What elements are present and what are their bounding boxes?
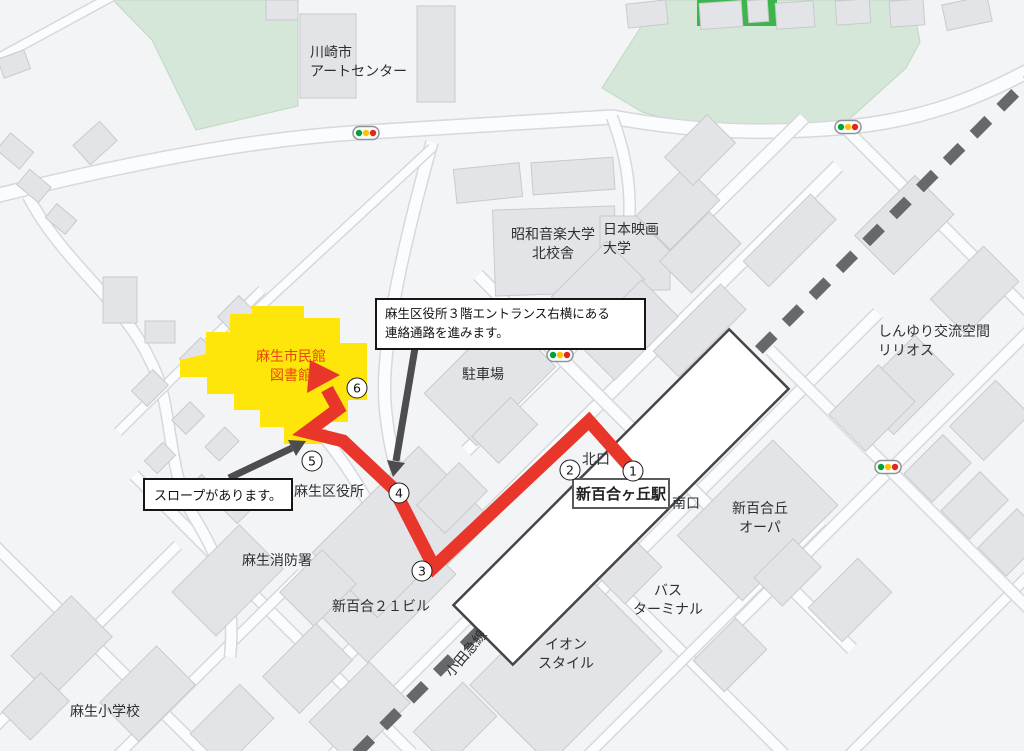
access-map: 川崎市 アートセンター 昭和音楽大学 北校舎 日本映画 大学 しんゆり交流空間 …	[0, 0, 1024, 751]
label-parking-lot: 駐車場	[462, 366, 504, 385]
label-asao-elementary-school: 麻生小学校	[70, 703, 140, 722]
traffic-light-icon	[835, 121, 861, 134]
label-north-exit: 北口	[582, 451, 610, 470]
label-showa-music-univ: 昭和音楽大学 北校舎	[511, 226, 595, 264]
traffic-light-icon	[875, 461, 901, 474]
label-japan-film-univ: 日本映画 大学	[603, 221, 659, 259]
map-canvas	[0, 0, 1024, 751]
label-kawasaki-art-center: 川崎市 アートセンター	[310, 44, 407, 82]
label-asao-fire-station: 麻生消防署	[242, 552, 312, 571]
callout-slope-note: スロープがあります。	[143, 478, 293, 511]
label-shinyurigaoka-opa: 新百合丘 オーパ	[732, 500, 788, 538]
label-shinyuri-lirios: しんゆり交流空間 リリオス	[878, 323, 990, 361]
route-marker-4: 4	[389, 483, 410, 504]
label-bus-terminal: バス ターミナル	[633, 582, 703, 620]
route-marker-5: 5	[302, 451, 323, 472]
callout-corridor-note: 麻生区役所３階エントランス右横にある 連絡通路を進みます。	[375, 298, 646, 350]
guide-arrow-slope	[229, 440, 306, 478]
route-marker-6: 6	[347, 378, 368, 399]
station-name-box: 新百合ヶ丘駅	[572, 478, 670, 509]
label-aeon-style: イオン スタイル	[538, 636, 594, 674]
route-marker-2: 2	[560, 460, 581, 481]
label-asao-ward-office: 麻生区役所	[294, 483, 364, 502]
traffic-light-icon	[547, 349, 573, 362]
label-shinyuri-21-building: 新百合２１ビル	[332, 598, 430, 617]
route-marker-1: 1	[623, 461, 644, 482]
route-marker-3: 3	[412, 561, 433, 582]
label-asao-civic-hall-library: 麻生市民館 図書館	[256, 348, 326, 386]
label-south-exit: 南口	[672, 495, 700, 514]
traffic-light-icon	[353, 127, 379, 140]
